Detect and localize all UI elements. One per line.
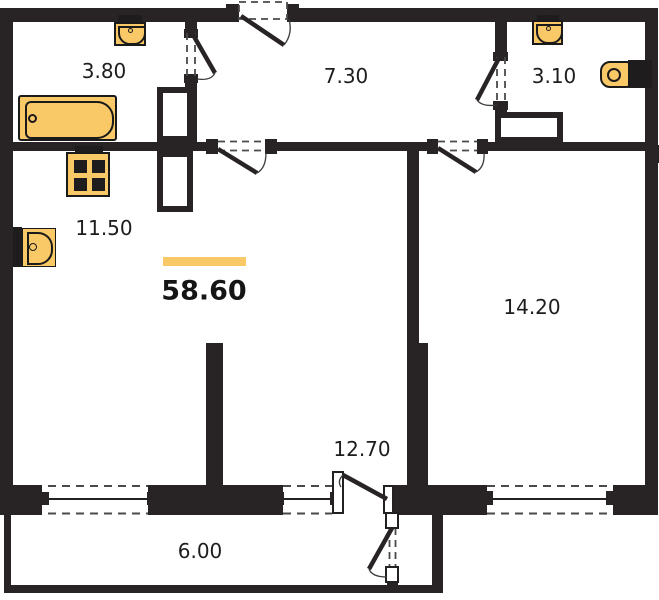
door-post (265, 139, 277, 154)
window-post (484, 491, 493, 505)
wall (0, 142, 206, 151)
wall (613, 485, 658, 515)
floor-plan: 3.80 7.30 3.10 11.50 14.20 12.70 6.00 58… (0, 0, 659, 600)
toilet-icon (600, 61, 630, 88)
wall (0, 8, 13, 515)
room-label-bedroom: 14.20 (503, 295, 560, 319)
toilet-tank (628, 60, 652, 88)
room-label-bathroom-1: 3.80 (82, 59, 127, 83)
wall (488, 142, 651, 151)
bathtub-icon (18, 95, 117, 141)
total-area-accent-bar (163, 257, 246, 266)
window-post (41, 492, 49, 505)
door-frame (333, 472, 398, 582)
door-post (427, 139, 438, 154)
door-post (493, 52, 508, 61)
balcony-wall (4, 585, 443, 593)
balcony-wall (387, 574, 398, 587)
wall-stub (647, 145, 659, 163)
room-label-kitchen: 11.50 (75, 216, 132, 240)
window-post (330, 492, 338, 505)
balcony-wall (4, 513, 11, 592)
door-post (287, 4, 299, 20)
wall (206, 343, 223, 485)
wall (148, 485, 283, 515)
room-label-balcony: 6.00 (178, 539, 223, 563)
window-post (276, 492, 284, 505)
wall (407, 343, 428, 485)
sink-mount (13, 227, 22, 267)
wall (0, 485, 42, 515)
wall (495, 22, 507, 56)
total-area-label: 58.60 (161, 276, 246, 307)
door-post (493, 101, 508, 110)
window-post (147, 492, 155, 505)
room-label-bathroom-2: 3.10 (532, 64, 577, 88)
wash-basin-icon (532, 20, 563, 45)
room-label-hallway: 7.30 (324, 64, 369, 88)
balcony-wall (432, 513, 443, 593)
wash-basin-icon (114, 22, 146, 46)
wall (393, 485, 487, 515)
kitchen-sink-icon (22, 228, 56, 267)
wall (407, 151, 419, 343)
vent-shaft (495, 112, 563, 143)
room-label-living-room: 12.70 (333, 437, 390, 461)
vent-shaft (157, 87, 193, 142)
wall (277, 142, 428, 151)
door-post (184, 29, 198, 38)
vent-shaft (157, 151, 193, 212)
door-post (206, 139, 218, 154)
wall (287, 8, 651, 22)
door-post (226, 4, 239, 20)
window-post (606, 491, 615, 505)
door-post (184, 74, 198, 83)
stove-icon (66, 152, 110, 197)
door-post (477, 139, 488, 154)
